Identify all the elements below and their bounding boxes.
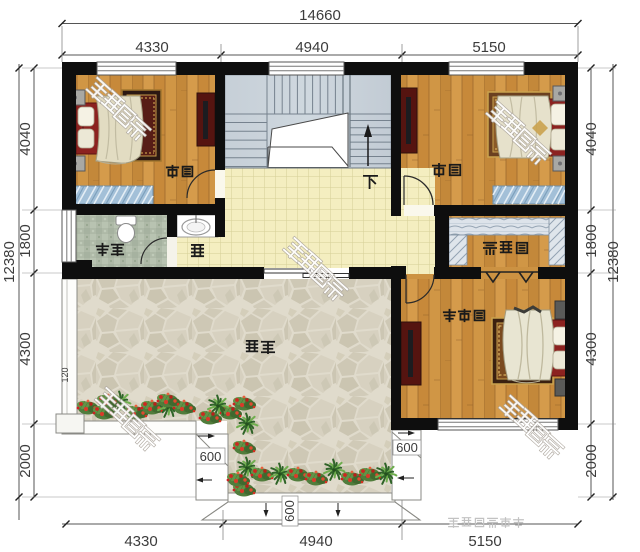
- svg-text:600: 600: [200, 449, 222, 464]
- svg-text:14660: 14660: [299, 7, 341, 24]
- svg-text:5150: 5150: [472, 39, 505, 56]
- svg-text:4330: 4330: [135, 39, 168, 56]
- svg-text:4040: 4040: [17, 122, 34, 155]
- svg-text:4300: 4300: [17, 332, 34, 365]
- svg-text:4940: 4940: [299, 533, 332, 547]
- svg-text:1800: 1800: [17, 224, 34, 257]
- svg-text:120: 120: [60, 367, 70, 382]
- svg-text:5150: 5150: [468, 533, 501, 547]
- svg-text:2000: 2000: [17, 444, 34, 477]
- svg-text:12380: 12380: [1, 241, 18, 283]
- svg-text:600: 600: [396, 440, 418, 455]
- svg-text:1800: 1800: [583, 224, 600, 257]
- svg-text:4040: 4040: [583, 122, 600, 155]
- svg-text:12380: 12380: [605, 241, 622, 283]
- svg-text:2000: 2000: [583, 444, 600, 477]
- svg-text:600: 600: [282, 500, 297, 522]
- svg-text:4940: 4940: [295, 39, 328, 56]
- svg-text:4300: 4300: [583, 332, 600, 365]
- svg-text:4330: 4330: [124, 533, 157, 547]
